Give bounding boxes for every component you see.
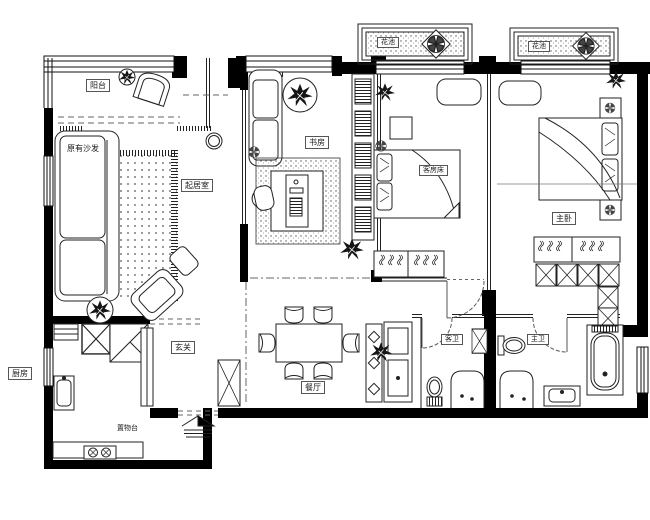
study-planter <box>283 78 317 112</box>
master-bed <box>497 118 637 200</box>
bedroom2-door <box>447 281 484 318</box>
floor-plan-canvas <box>0 0 650 520</box>
dining-table <box>276 324 342 362</box>
balcony-chair <box>133 70 172 107</box>
bathtub <box>587 325 623 395</box>
guest-shower-floor <box>451 371 484 408</box>
living-plant <box>87 297 113 323</box>
label-guest-bathroom: 客卫 <box>441 334 463 345</box>
foyer <box>182 360 240 437</box>
kitchen-window <box>44 348 53 386</box>
bedroom2 <box>374 79 481 277</box>
floor-plan: 阳台 原有沙发 起居室 书房 客房床 主卧 花池 花池 厨房 置物台 玄关 餐厅… <box>0 0 650 520</box>
study-plant <box>340 239 363 260</box>
guest-toilet <box>427 377 442 406</box>
master-window <box>521 61 610 74</box>
balcony-window <box>44 56 174 72</box>
label-flower-bed-2: 花池 <box>528 41 550 52</box>
study-sofa <box>249 70 282 166</box>
dining <box>259 307 359 379</box>
master-shower-floor <box>500 371 533 408</box>
label-foyer: 玄关 <box>171 341 195 354</box>
living-sofa <box>55 131 119 301</box>
label-master-bedroom: 主卧 <box>552 212 576 225</box>
master-wardrobe <box>534 237 620 329</box>
study-desk <box>286 175 308 227</box>
label-existing-sofa: 原有沙发 <box>64 143 102 154</box>
label-study: 书房 <box>305 136 329 149</box>
kitchen-sink <box>54 376 74 410</box>
master-vanity <box>544 386 580 406</box>
label-storage-counter: 置物台 <box>114 424 141 433</box>
bath-window <box>637 347 648 393</box>
label-guest-bed: 客房床 <box>419 165 448 176</box>
living-side-table <box>206 133 222 149</box>
shoe-cabinet <box>218 360 240 406</box>
flower-bed-2 <box>510 28 618 64</box>
sideboard <box>366 322 412 402</box>
kitchen <box>53 324 153 459</box>
living-left-window <box>44 156 53 206</box>
label-living-room: 起居室 <box>181 179 213 192</box>
kitchen-tall-cabinet <box>141 328 153 406</box>
label-balcony: 阳台 <box>86 79 110 92</box>
label-kitchen: 厨房 <box>8 367 32 380</box>
bedroom2-window <box>376 61 464 74</box>
label-flower-bed-1: 花池 <box>377 37 399 48</box>
bedroom2-hanger-rack <box>374 251 444 277</box>
balcony-plant <box>119 69 135 85</box>
study-bookshelf <box>352 74 374 240</box>
label-dining-room: 餐厅 <box>301 381 325 394</box>
guest-bed <box>374 150 460 218</box>
bedroom2-plant <box>375 83 395 101</box>
master-bedroom <box>497 81 637 329</box>
kitchen-stove <box>84 446 116 459</box>
master-bath <box>498 325 623 408</box>
master-toilet <box>498 336 525 355</box>
label-master-bathroom: 主卫 <box>527 334 549 345</box>
kitchen-shelf <box>54 324 78 340</box>
